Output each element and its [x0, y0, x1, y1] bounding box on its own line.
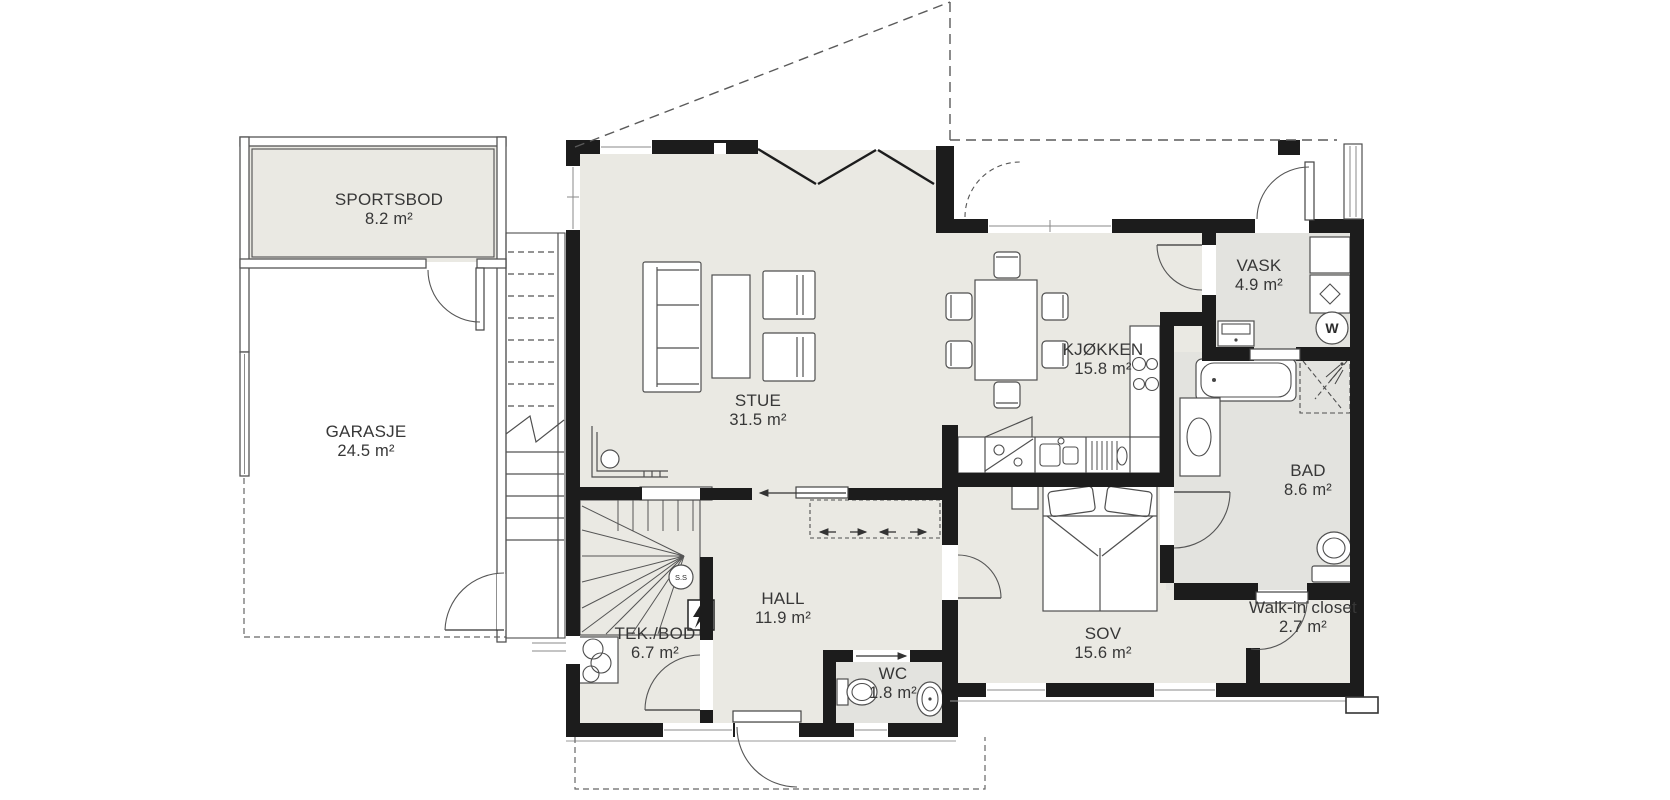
bathroom-vanity-icon	[1180, 398, 1220, 476]
main-entrance-door	[733, 711, 801, 787]
kitchen-window	[988, 219, 1112, 233]
terrace-door-swing	[965, 162, 1020, 217]
stair-break-line	[506, 416, 564, 442]
room-label-garasje: GARASJE 24.5 m²	[326, 422, 407, 461]
small-sink-icon	[1218, 321, 1254, 346]
room-label-sportsbod: SPORTSBOD 8.2 m²	[335, 190, 443, 229]
exterior-step	[1346, 697, 1378, 713]
room-label-walk-in-closet: Walk-in closet 2.7 m²	[1249, 598, 1357, 637]
room-label-sov: SOV 15.6 m²	[1074, 624, 1131, 663]
washing-machine-icon: W	[1316, 312, 1348, 344]
bad-sliding-door	[1250, 349, 1300, 360]
floorplan-drawing: S.S	[0, 0, 1670, 800]
window	[532, 636, 580, 664]
bedroom-window	[1154, 683, 1216, 697]
sportsbod-door	[428, 268, 484, 330]
hall-window	[663, 723, 733, 737]
room-label-vask: VASK 4.9 m²	[1235, 256, 1283, 295]
armchair	[763, 271, 815, 319]
stair-landing-label: S.S	[675, 573, 687, 582]
entry-glass-panel	[1344, 144, 1362, 219]
window	[600, 140, 652, 154]
svg-text:W: W	[1325, 320, 1339, 336]
roof-outline	[575, 2, 1337, 147]
bedroom-window	[986, 683, 1046, 697]
exterior-stairs	[506, 233, 565, 638]
window	[566, 166, 580, 230]
armchair	[763, 333, 815, 381]
room-label-wc: WC 1.8 m²	[869, 664, 917, 703]
sofa	[643, 262, 701, 392]
double-bed	[1043, 483, 1157, 611]
wc-sink-icon	[917, 682, 943, 716]
room-label-bad: BAD 8.6 m²	[1284, 461, 1332, 500]
laundry-counter	[1310, 237, 1350, 273]
room-label-tek-bod: TEK./BOD 6.7 m²	[615, 624, 696, 663]
wall-vent	[714, 143, 726, 154]
room-label-hall: HALL 11.9 m²	[755, 589, 811, 628]
garage-window	[240, 352, 249, 476]
hall-window	[854, 723, 888, 737]
floorplan-page: S.S	[0, 0, 1670, 800]
room-label-kjokken: KJØKKEN 15.8 m²	[1063, 340, 1144, 379]
wc-sliding-door	[853, 650, 910, 662]
laundry-sink-unit	[1310, 275, 1350, 313]
water-heater-icon	[578, 637, 618, 683]
coffee-table	[712, 275, 750, 378]
bathtub-icon	[1196, 359, 1296, 401]
porch-outline	[575, 737, 985, 789]
nightstand	[1012, 485, 1038, 509]
entry-door-vask	[1255, 162, 1314, 233]
room-label-stue: STUE 31.5 m²	[729, 391, 786, 430]
